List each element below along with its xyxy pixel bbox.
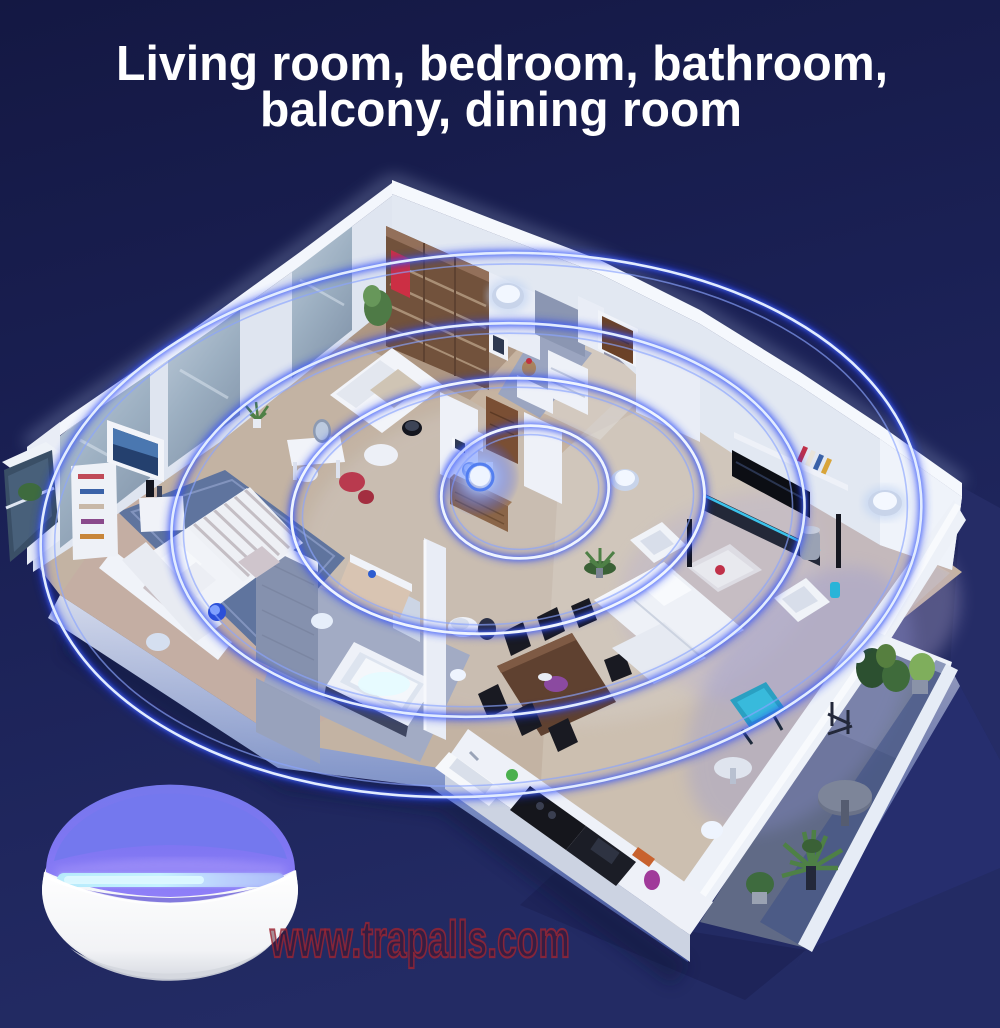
svg-text:balcony, dining room: balcony, dining room (260, 83, 742, 137)
svg-text:www.trapalls.com: www.trapalls.com (269, 911, 570, 969)
